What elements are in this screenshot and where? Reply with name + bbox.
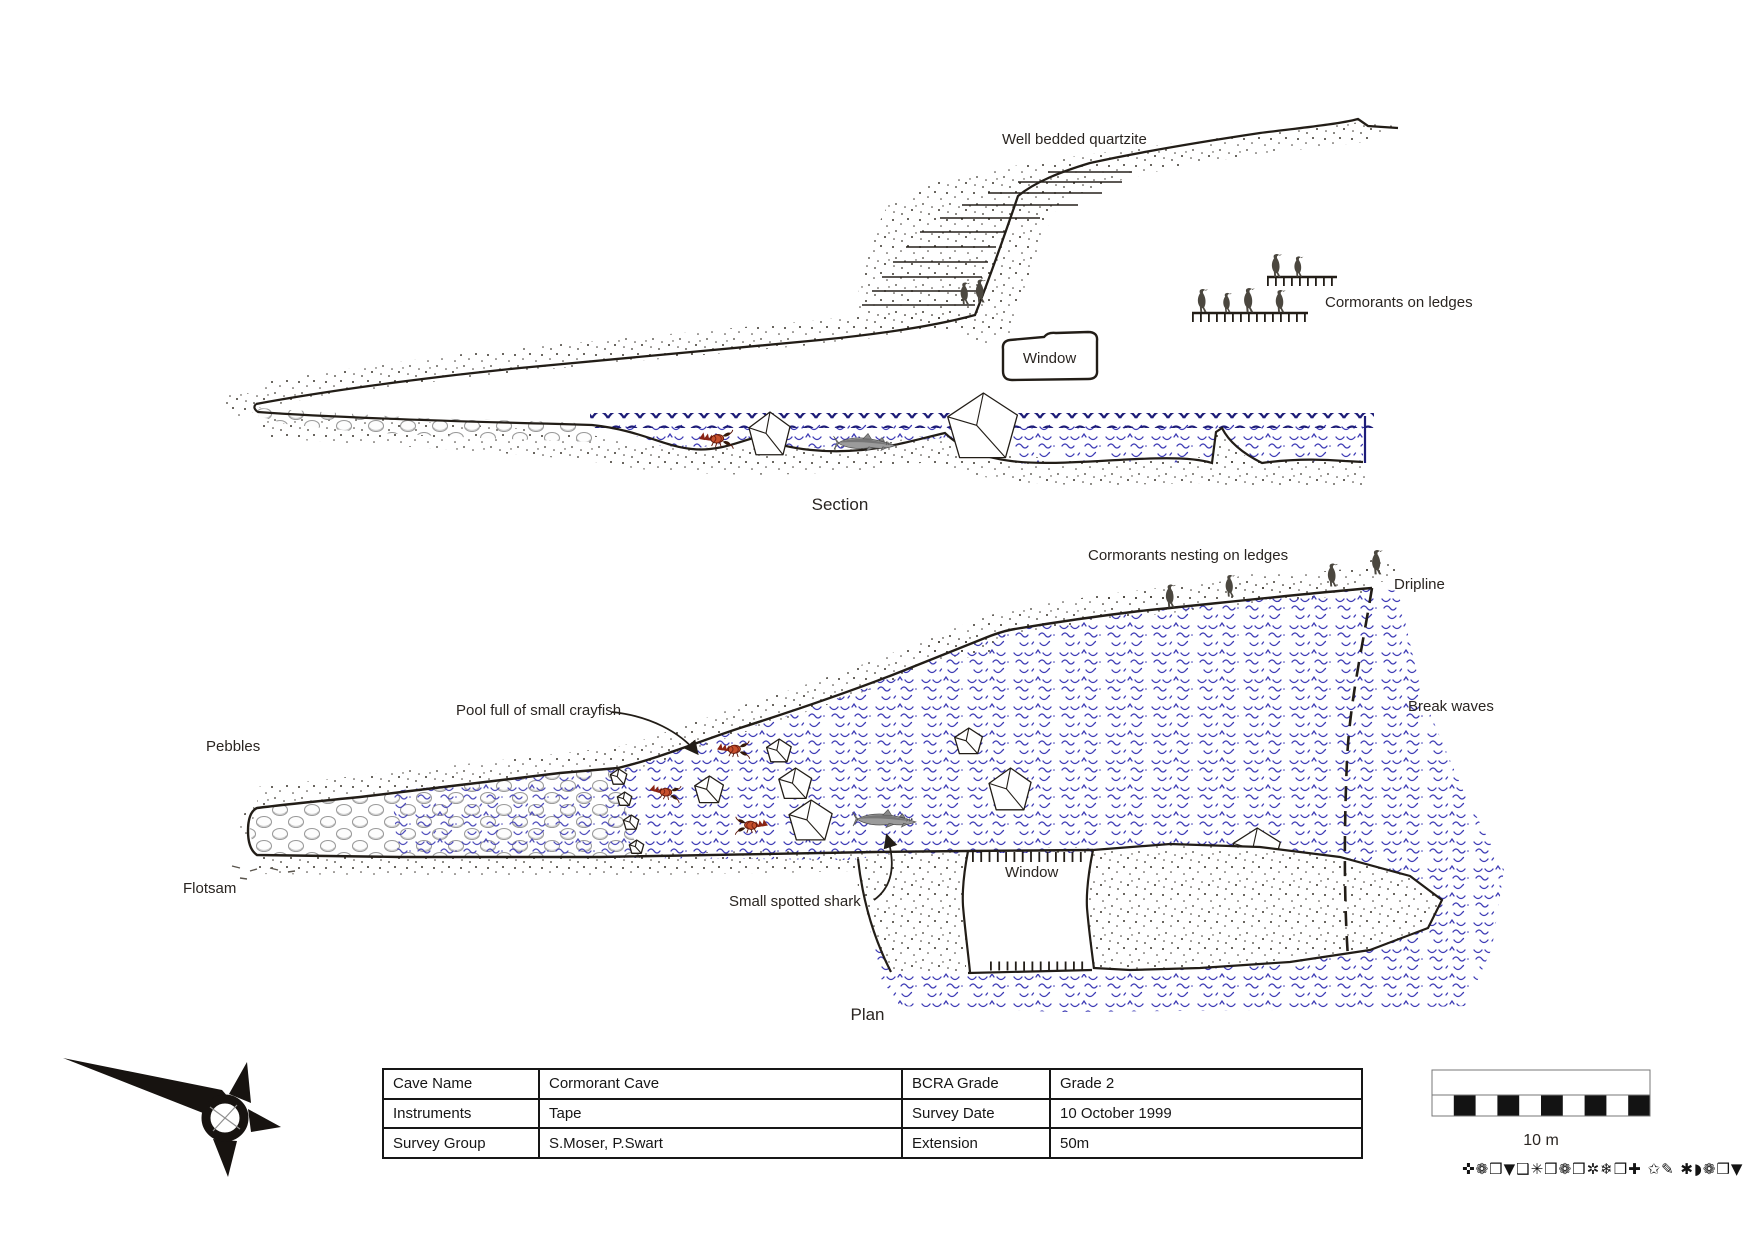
section-view — [222, 119, 1398, 473]
label-flotsam: Flotsam — [183, 880, 236, 897]
footer-symbols: ✜❁❒▼❑✳❒❁❒✲❄❒✚ ✩✎ ✱◗❁❒▼ — [1462, 1160, 1743, 1178]
cormorant-icon — [1244, 288, 1255, 312]
survey-date-value: 10 October 1999 — [1050, 1099, 1362, 1129]
cave-survey-drawing — [0, 0, 1750, 1238]
extension-label: Extension — [902, 1128, 1050, 1158]
cormorant-icon — [1294, 256, 1303, 276]
north-arrow-icon — [63, 1058, 281, 1177]
survey-group-value: S.Moser, P.Swart — [539, 1128, 902, 1158]
label-window-plan: Window — [1005, 864, 1058, 881]
section-roof-stipple — [256, 307, 975, 396]
label-pebbles: Pebbles — [206, 738, 260, 755]
rock-icon — [948, 393, 1018, 458]
cormorant-ledges — [1192, 254, 1337, 318]
survey-date-label: Survey Date — [902, 1099, 1050, 1129]
table-row: Instruments Tape Survey Date 10 October … — [383, 1099, 1362, 1129]
label-dripline: Dripline — [1394, 576, 1445, 593]
cave-survey-page: Well bedded quartzite Cormorants on ledg… — [0, 0, 1750, 1238]
instruments-value: Tape — [539, 1099, 902, 1129]
cave-name-value: Cormorant Cave — [539, 1069, 902, 1099]
scale-bar-checker — [1432, 1095, 1650, 1116]
survey-info-table: Cave Name Cormorant Cave BCRA Grade Grad… — [382, 1068, 1363, 1159]
cormorant-icon — [1223, 293, 1232, 312]
scale-bar — [1432, 1070, 1650, 1116]
label-cormorants-on-ledges: Cormorants on ledges — [1325, 294, 1473, 311]
bcra-grade-value: Grade 2 — [1050, 1069, 1362, 1099]
cormorant-icon — [1198, 289, 1208, 312]
label-cormorants-nesting: Cormorants nesting on ledges — [1088, 547, 1288, 564]
cormorant-icon — [1276, 290, 1286, 312]
table-row: Cave Name Cormorant Cave BCRA Grade Grad… — [383, 1069, 1362, 1099]
bcra-grade-label: BCRA Grade — [902, 1069, 1050, 1099]
table-row: Survey Group S.Moser, P.Swart Extension … — [383, 1128, 1362, 1158]
instruments-label: Instruments — [383, 1099, 539, 1129]
survey-group-label: Survey Group — [383, 1128, 539, 1158]
plan-view — [232, 550, 1504, 1012]
west-pillar-stipple — [856, 855, 970, 974]
stipple-cloud — [222, 392, 258, 416]
section-title: Section — [795, 495, 885, 515]
label-well-bedded-quartzite: Well bedded quartzite — [1002, 131, 1147, 148]
label-window-section: Window — [1001, 350, 1098, 367]
stipple-cloud — [1233, 572, 1297, 592]
label-pool-crayfish: Pool full of small crayfish — [456, 702, 621, 719]
scale-label: 10 m — [1493, 1132, 1589, 1150]
label-break-waves: Break waves — [1408, 698, 1494, 715]
extension-value: 50m — [1050, 1128, 1362, 1158]
cave-name-label: Cave Name — [383, 1069, 539, 1099]
plan-title: Plan — [820, 1005, 915, 1025]
cormorant-icon — [1272, 254, 1282, 277]
label-small-spotted-shark: Small spotted shark — [729, 893, 861, 910]
